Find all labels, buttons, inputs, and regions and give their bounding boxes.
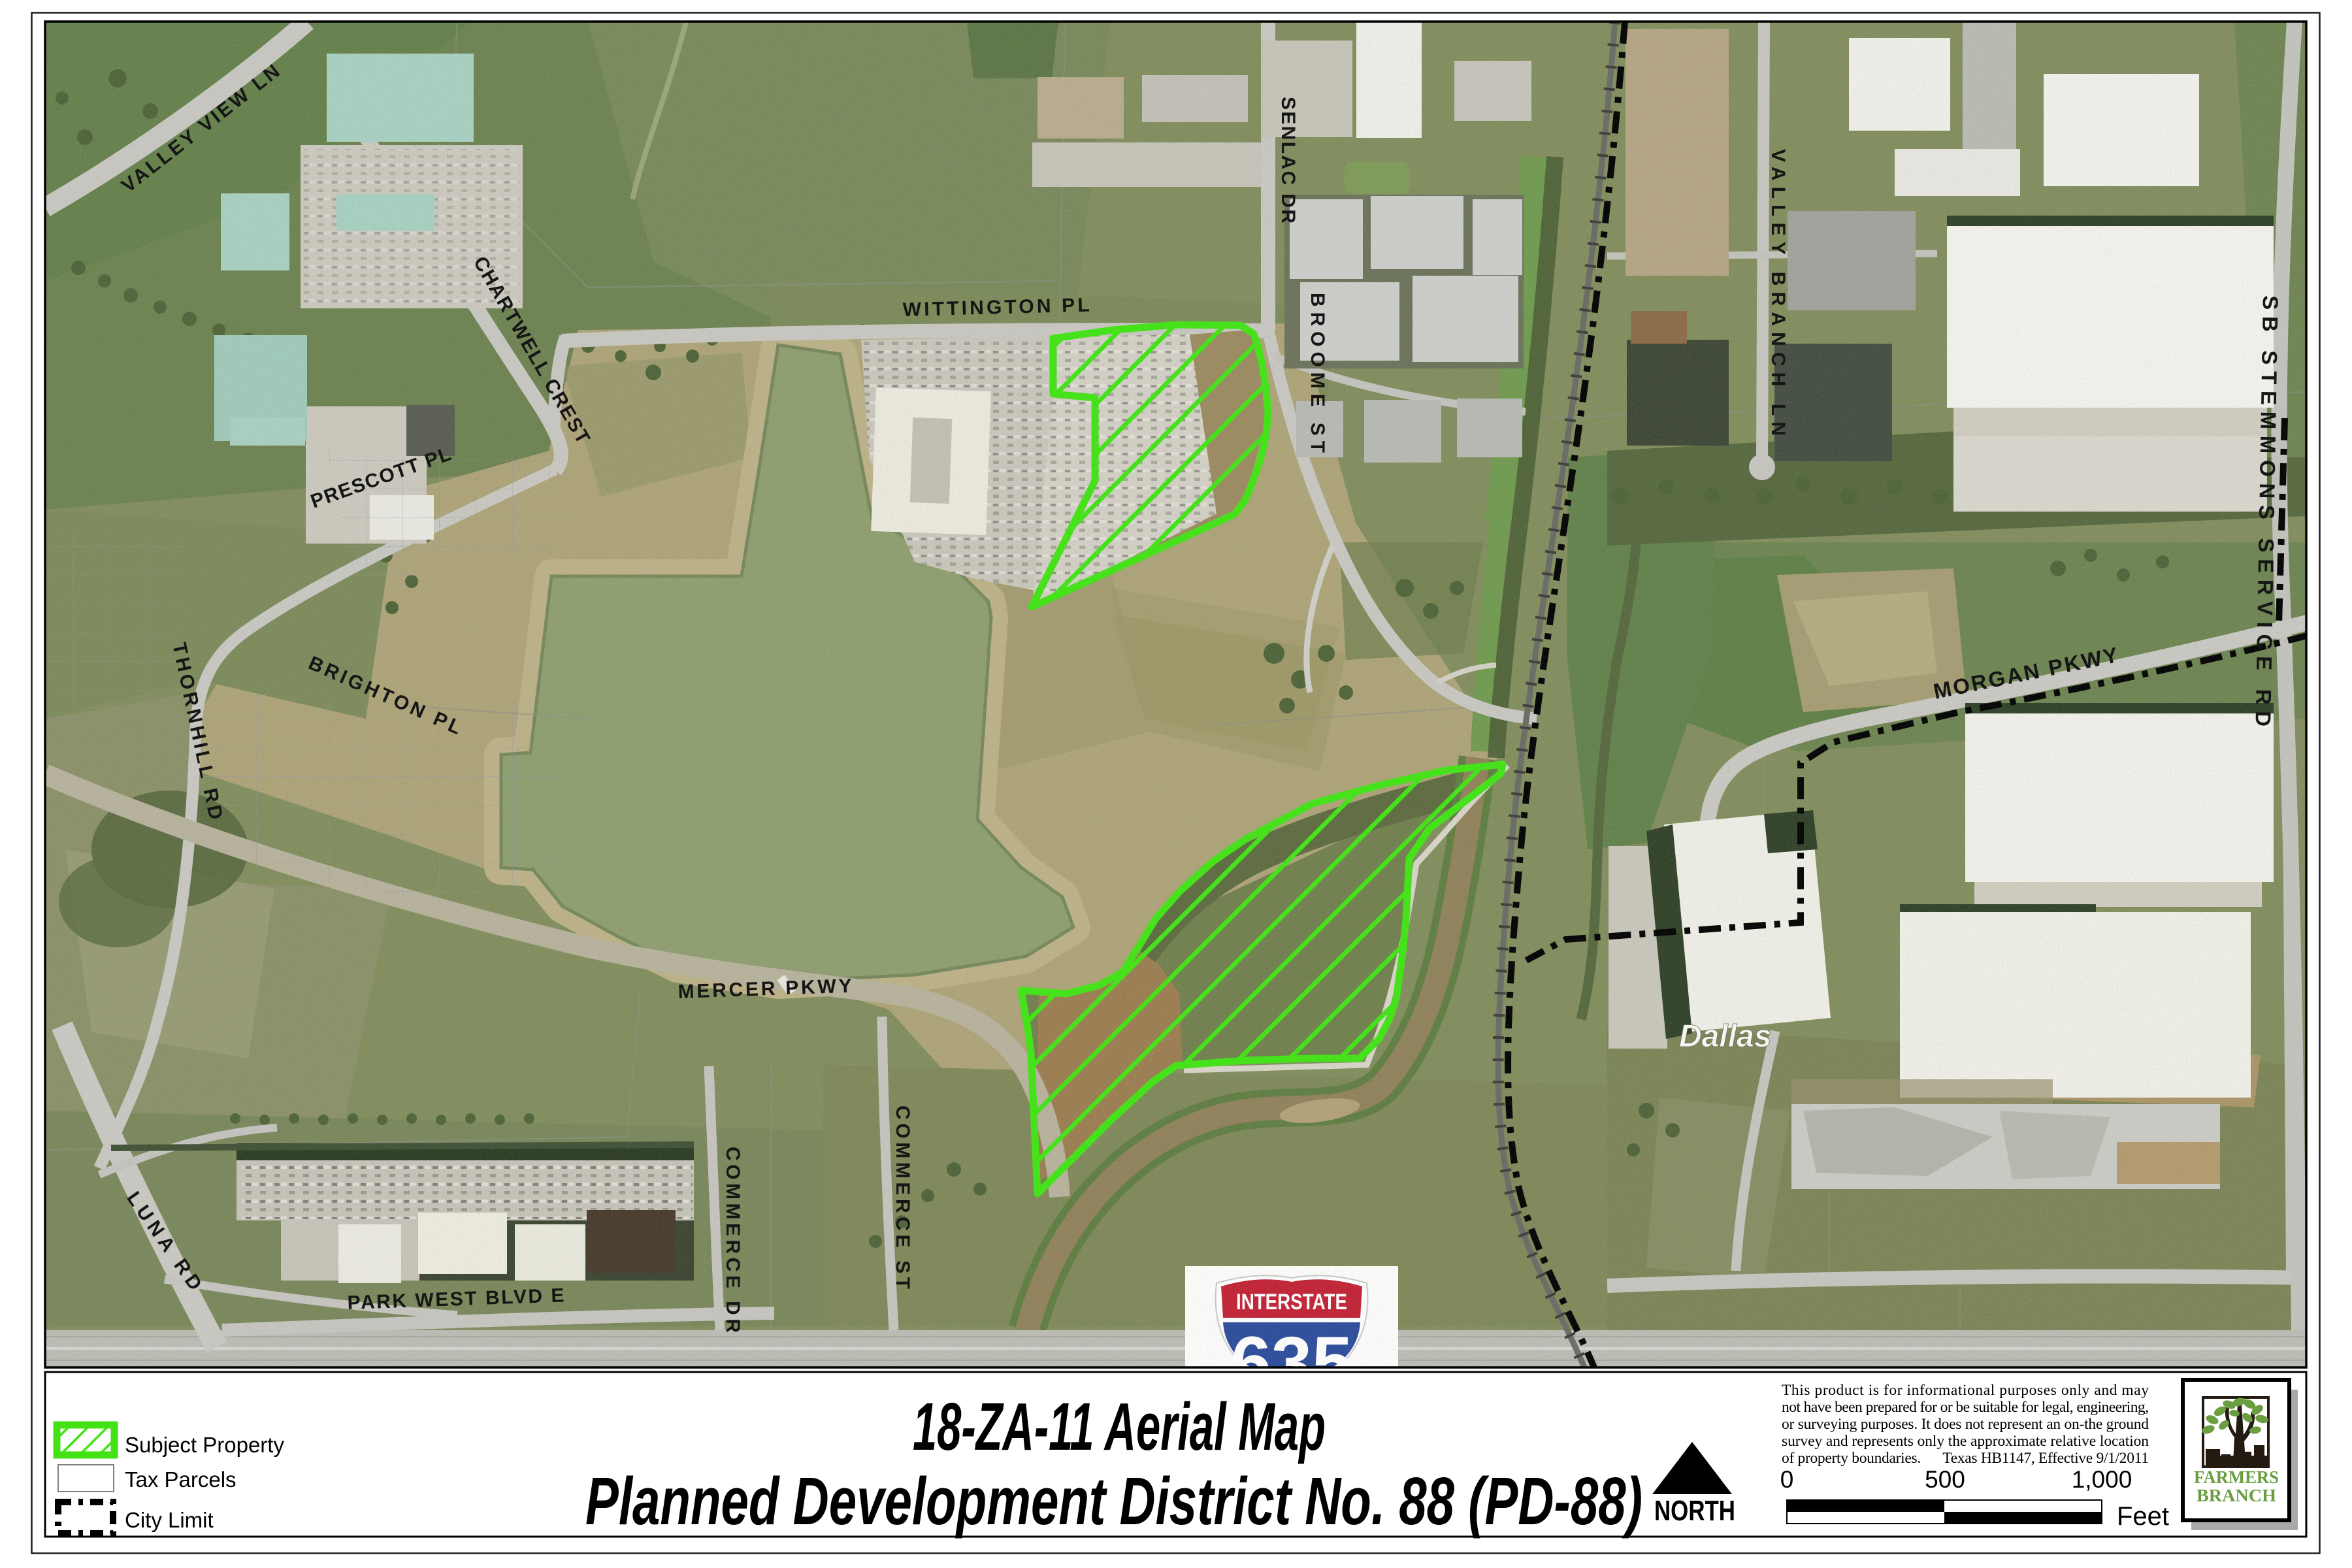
svg-text:This product is for inform: This product is for informational purpos… — [1782, 1382, 2149, 1399]
svg-text:1,000: 1,000 — [2072, 1466, 2132, 1493]
svg-text:City Limit: City Limit — [125, 1508, 214, 1532]
svg-text:or surveying purposes. It does: or surveying purposes. It does not repre… — [1782, 1416, 2149, 1433]
svg-text:Subject Property: Subject Property — [125, 1433, 284, 1457]
svg-text:0: 0 — [1780, 1466, 1794, 1493]
svg-text:500: 500 — [1925, 1466, 1965, 1493]
svg-text:BRANCH: BRANCH — [2197, 1486, 2276, 1505]
svg-text:FARMERS: FARMERS — [2194, 1467, 2279, 1487]
svg-text:Feet: Feet — [2117, 1502, 2169, 1531]
svg-text:Planned Development District N: Planned Development District No. 88 (PD-… — [585, 1463, 1642, 1539]
svg-text:Tax Parcels: Tax Parcels — [125, 1467, 237, 1492]
svg-text:survey and represents only the: survey and represents only the approxima… — [1782, 1433, 2149, 1450]
svg-text:not have been prepared for or: not have been prepared for or be suitabl… — [1782, 1399, 2149, 1416]
svg-text:of property boundaries. T: of property boundaries. Texas HB1147, Ef… — [1782, 1450, 2149, 1467]
svg-text:18-ZA-11 Aerial Map: 18-ZA-11 Aerial Map — [913, 1389, 1326, 1464]
svg-text:NORTH: NORTH — [1654, 1495, 1735, 1527]
